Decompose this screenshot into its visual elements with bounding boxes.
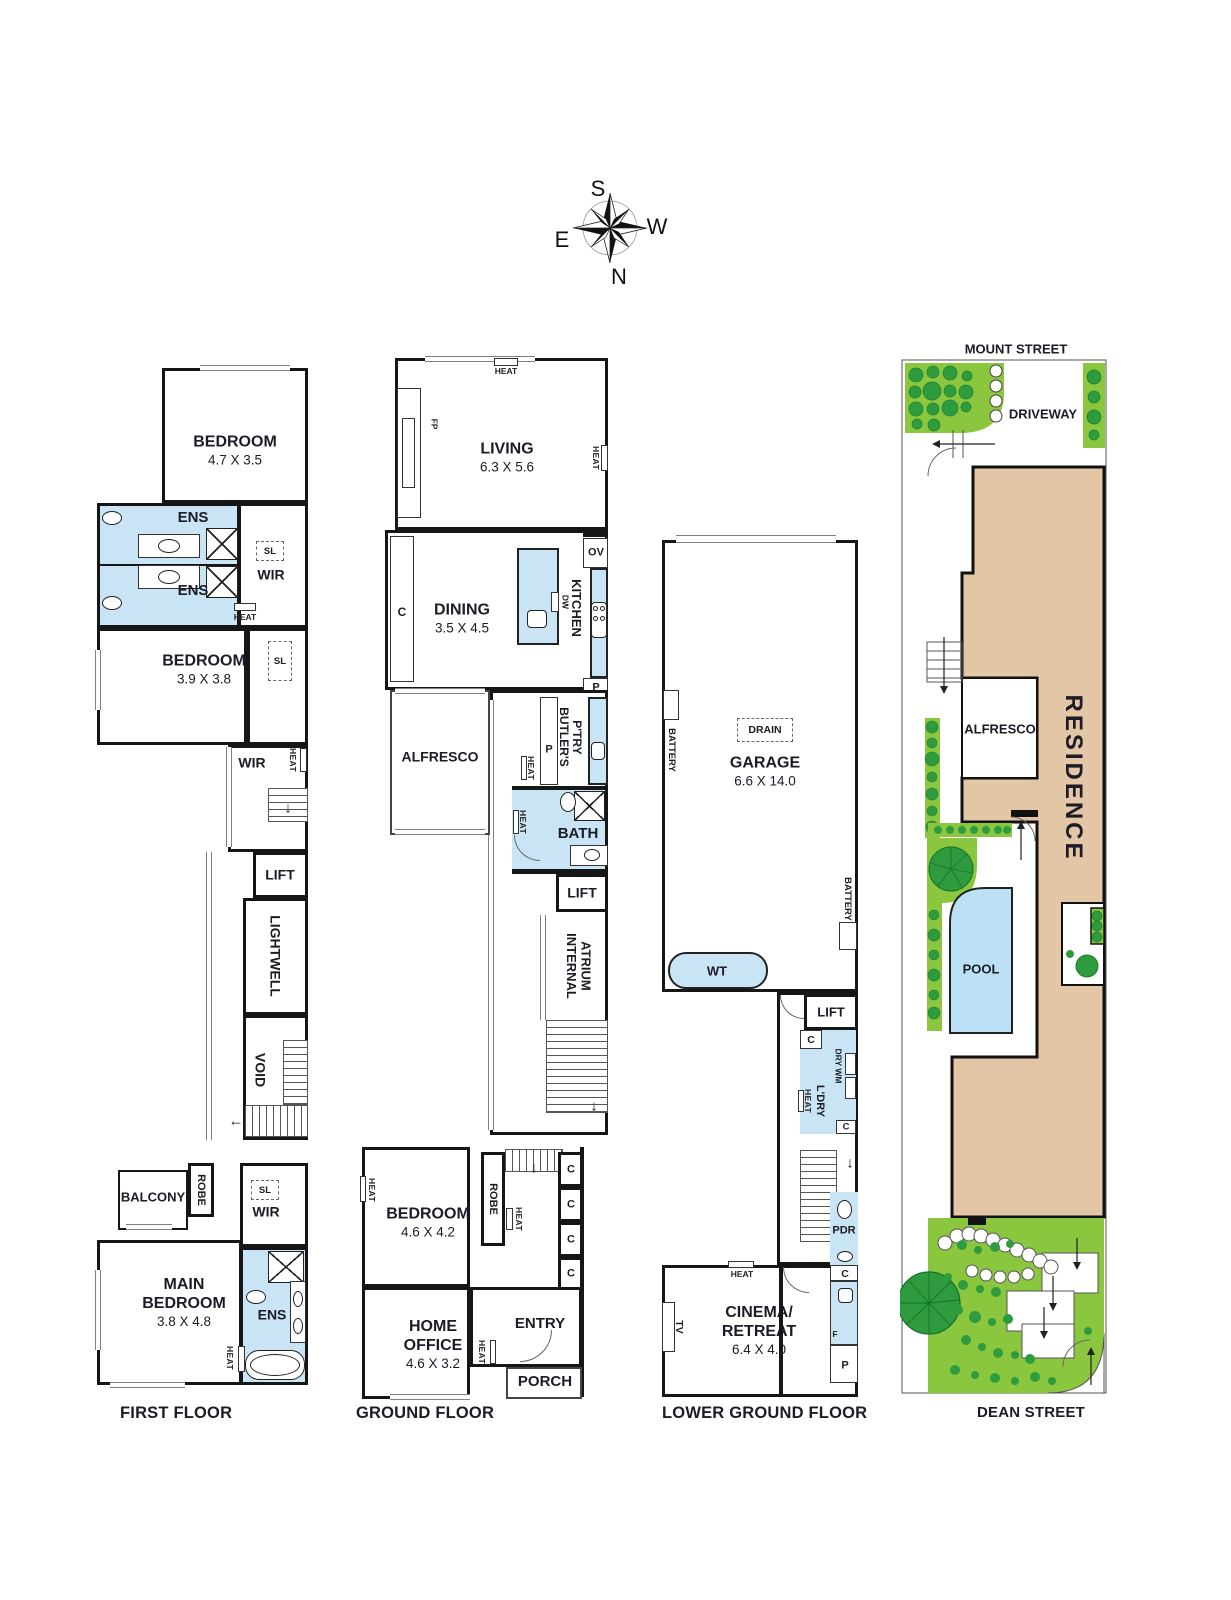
sink-icon [838, 1288, 853, 1303]
window [390, 1394, 470, 1400]
gf-bedroom-label: BEDROOM 4.6 X 4.2 [386, 1206, 470, 1241]
window [110, 1382, 185, 1388]
shower-icon [268, 1251, 304, 1283]
gf-butlers-label: BUTLER'S P'TRY [557, 707, 583, 767]
heater-icon [300, 748, 307, 772]
mount-street-label: MOUNT STREET [965, 341, 1068, 356]
gf-dining-label: DINING 3.5 X 4.5 [434, 602, 490, 637]
down-arrow-icon: ↓ [530, 1160, 538, 1177]
lg-wt-label: WT [707, 963, 727, 978]
lg-tv-label: TV [672, 1320, 684, 1333]
shower-icon [574, 791, 605, 821]
left-arrow-icon: ← [229, 1113, 244, 1130]
gf-lift-label: LIFT [567, 885, 597, 902]
stairs-icon [546, 1020, 608, 1113]
burner-icon [593, 616, 598, 621]
dryer-icon [845, 1053, 856, 1075]
basin-icon [293, 1291, 303, 1307]
room-name: LIVING [480, 441, 534, 460]
sink-icon [591, 742, 605, 760]
battery-box [663, 690, 679, 720]
toilet-icon [102, 511, 122, 525]
first-floor-caption: FIRST FLOOR [120, 1404, 232, 1423]
room-name: BEDROOM [142, 1295, 226, 1314]
room-dim: 4.6 X 4.2 [386, 1224, 470, 1240]
window [425, 356, 535, 362]
lg-cinema-label: CINEMA/ RETREAT 6.4 X 4.0 [722, 1304, 796, 1358]
lg-battery-left-label: BATTERY [666, 728, 676, 772]
room-name: OFFICE [404, 1337, 463, 1356]
gf-fp-label: FP [429, 419, 438, 430]
ff-ens1-label: ENS [178, 509, 209, 527]
pantry-column [540, 697, 558, 785]
ff-ens3-label: ENS [258, 1307, 287, 1324]
gf-kitchen-label: KITCHEN [569, 579, 583, 637]
ff-skylight3: SL [251, 1180, 279, 1200]
ff-robe-label: ROBE [195, 1174, 207, 1206]
heater-icon [506, 1208, 513, 1230]
lg-heat-cinema-label: HEAT [731, 1269, 754, 1279]
ff-wir3-label: WIR [252, 1204, 279, 1221]
lg-garage-label: GARAGE 6.6 X 14.0 [730, 755, 800, 790]
window [95, 650, 101, 710]
driveway-side-garden [1083, 363, 1105, 448]
lg-drywm-label: DRY WM [833, 1049, 842, 1084]
pool-label: POOL [963, 961, 1000, 976]
ff-balcony-label: BALCONY [121, 1189, 185, 1204]
gf-living-label: LIVING 6.3 X 5.6 [480, 441, 534, 476]
wall [968, 1216, 986, 1225]
lower-ground-caption: LOWER GROUND FLOOR [662, 1404, 867, 1423]
room-name: CINEMA/ [722, 1304, 796, 1323]
room-name: BUTLER'S [557, 707, 570, 767]
room-name: HOME [404, 1318, 463, 1337]
gf-home-office-label: HOME OFFICE 4.6 X 3.2 [404, 1318, 463, 1372]
gf-c1-label: C [567, 1164, 575, 1177]
fireplace-icon [402, 418, 415, 488]
burner-icon [600, 616, 605, 621]
window [200, 365, 290, 371]
gf-heat-bedroom-label: HEAT [367, 1178, 377, 1202]
basin-icon [158, 539, 180, 553]
ff-wir1-label: WIR [257, 567, 284, 584]
ff-void-label: VOID [252, 1053, 267, 1087]
down-arrow-icon [940, 637, 948, 694]
room-dim: 4.7 X 3.5 [193, 452, 277, 468]
heater-icon [238, 1346, 245, 1372]
sink-icon [527, 610, 547, 628]
window [95, 1270, 101, 1350]
room-name: DINING [434, 602, 490, 621]
room-name: GARAGE [730, 755, 800, 774]
heater-icon [728, 1261, 754, 1268]
heater-icon [360, 1176, 366, 1202]
burner-icon [600, 606, 605, 611]
window [395, 688, 485, 694]
gf-robe-label: ROBE [487, 1183, 499, 1215]
compass-east-label: E [555, 227, 570, 253]
terrace-step [1022, 1324, 1074, 1358]
heater-icon [234, 603, 256, 611]
up-arrow-icon [1017, 821, 1025, 860]
room-name: MAIN [142, 1276, 226, 1295]
toilet-icon [837, 1200, 852, 1219]
gf-pantry2-label: P [545, 744, 552, 757]
room-dim: 4.6 X 3.2 [404, 1356, 463, 1372]
ff-ens2-label: ENS [178, 582, 209, 600]
ff-lightwell-label: LIGHTWELL [267, 915, 282, 997]
room-name: BEDROOM [162, 653, 246, 672]
lg-c-top-label: C [807, 1034, 815, 1046]
stairs-icon [245, 1105, 308, 1137]
room-dim: 6.6 X 14.0 [730, 773, 800, 789]
room-name: BEDROOM [386, 1206, 470, 1225]
down-arrow-icon: ↓ [846, 1155, 854, 1172]
door-arc-icon [928, 448, 956, 476]
window [395, 829, 485, 835]
gf-oven-label: OV [588, 547, 604, 560]
floorplan-sheet: S W E N BEDROOM 4.7 X 3.5 ENS ENS SL WIR… [0, 0, 1231, 1600]
ground-floor-caption: GROUND FLOOR [356, 1404, 494, 1423]
compass-north-label: N [611, 264, 627, 290]
shower-icon [206, 528, 238, 560]
compass-west-label: W [647, 214, 668, 240]
gf-heat-butlers-label: HEAT [526, 756, 536, 780]
window [540, 915, 546, 1020]
ff-skylight2: SL [268, 641, 292, 681]
site-alfresco-label: ALFRESCO [964, 721, 1036, 736]
ff-heat3-label: HEAT [225, 1346, 235, 1370]
washer-icon [845, 1077, 856, 1099]
ff-heat1-label: HEAT [234, 612, 257, 622]
window [206, 852, 212, 1140]
basin-icon [837, 1251, 853, 1262]
gf-c4-label: C [567, 1268, 575, 1281]
lg-pdr-label: PDR [832, 1225, 855, 1238]
gf-heat-top-label: HEAT [495, 366, 518, 376]
lg-fridge-label: F [832, 1329, 837, 1339]
tree-icon [1076, 955, 1098, 977]
gf-heat-robe-label: HEAT [514, 1207, 524, 1231]
wall [1011, 810, 1038, 817]
down-arrow-icon: ↓ [284, 800, 292, 817]
bathtub-icon [250, 1354, 300, 1376]
ff-bedroom1-label: BEDROOM 4.7 X 3.5 [193, 434, 277, 469]
butlers-bench [588, 697, 608, 785]
lg-heat-laundry-label: HEAT [803, 1089, 813, 1113]
room-dim: 6.4 X 4.0 [722, 1342, 796, 1358]
basin-icon [293, 1318, 303, 1334]
lg-pantry-label: P [841, 1360, 848, 1373]
gf-bath-label: BATH [558, 825, 599, 843]
gf-c2-label: C [567, 1199, 575, 1212]
garage-door [676, 535, 836, 543]
gf-c3-label: C [567, 1234, 575, 1247]
battery-box [839, 922, 857, 950]
dean-street-caption: DEAN STREET [977, 1404, 1085, 1421]
ff-main-bedroom-label: MAIN BEDROOM 3.8 X 4.8 [142, 1276, 226, 1330]
dishwasher-icon [551, 592, 559, 612]
room-dim: 6.3 X 5.6 [480, 459, 534, 475]
room-dim: 3.8 X 4.8 [142, 1314, 226, 1330]
window [226, 747, 232, 847]
wall [779, 1265, 783, 1397]
ff-skylight1: SL [256, 541, 284, 561]
rear-garden [900, 1216, 1104, 1393]
room-dim: 3.5 X 4.5 [434, 620, 490, 636]
ff-bedroom2-label: BEDROOM 3.9 X 3.8 [162, 653, 246, 688]
lg-laundry-label: L'DRY [814, 1085, 826, 1117]
room-dim: 3.9 X 3.8 [162, 671, 246, 687]
toilet-icon [560, 792, 576, 812]
ff-lift-label: LIFT [265, 867, 295, 884]
burner-icon [593, 606, 598, 611]
driveway-label: DRIVEWAY [1009, 406, 1077, 421]
basin-icon [584, 849, 600, 861]
residence-label: RESIDENCE [1059, 694, 1087, 861]
lg-c-right-label: C [841, 1268, 849, 1280]
stairs-icon [283, 1040, 308, 1105]
gf-heat-entry-label: HEAT [477, 1340, 487, 1364]
room-name: INTERNAL [564, 933, 578, 999]
lg-lift-label: LIFT [817, 1004, 844, 1019]
lg-drain: DRAIN [737, 718, 793, 742]
room-name: ATRIUM [578, 933, 592, 999]
ff-heat2-label: HEAT [288, 748, 298, 772]
down-arrow-icon: ↓ [590, 1098, 598, 1115]
gf-alfresco-label: ALFRESCO [402, 749, 479, 766]
window [126, 1224, 172, 1230]
wall [583, 533, 608, 537]
lg-battery-right-label: BATTERY [842, 877, 852, 921]
toilet-icon [102, 596, 122, 610]
gf-cupboard-label: C [398, 605, 407, 619]
toilet-icon [246, 1290, 266, 1304]
ff-wir2-label: WIR [238, 755, 265, 772]
room-name: RETREAT [722, 1323, 796, 1342]
room-name: BEDROOM [193, 434, 277, 453]
gf-heat-bath-label: HEAT [518, 810, 528, 834]
gf-heat-right-label: HEAT [591, 446, 601, 470]
compass-south-label: S [591, 176, 606, 202]
heater-icon [601, 445, 608, 471]
shower-icon [206, 566, 238, 598]
gf-porch-label: PORCH [518, 1373, 572, 1391]
room-name: P'TRY [570, 707, 583, 767]
gf-atrium-label: INTERNAL ATRIUM [564, 933, 593, 999]
site-plan-svg [900, 345, 1110, 1400]
front-garden [905, 363, 1004, 433]
lg-c-mid-label: C [843, 1121, 850, 1132]
heater-icon [490, 1340, 496, 1364]
heater-icon [494, 358, 518, 366]
